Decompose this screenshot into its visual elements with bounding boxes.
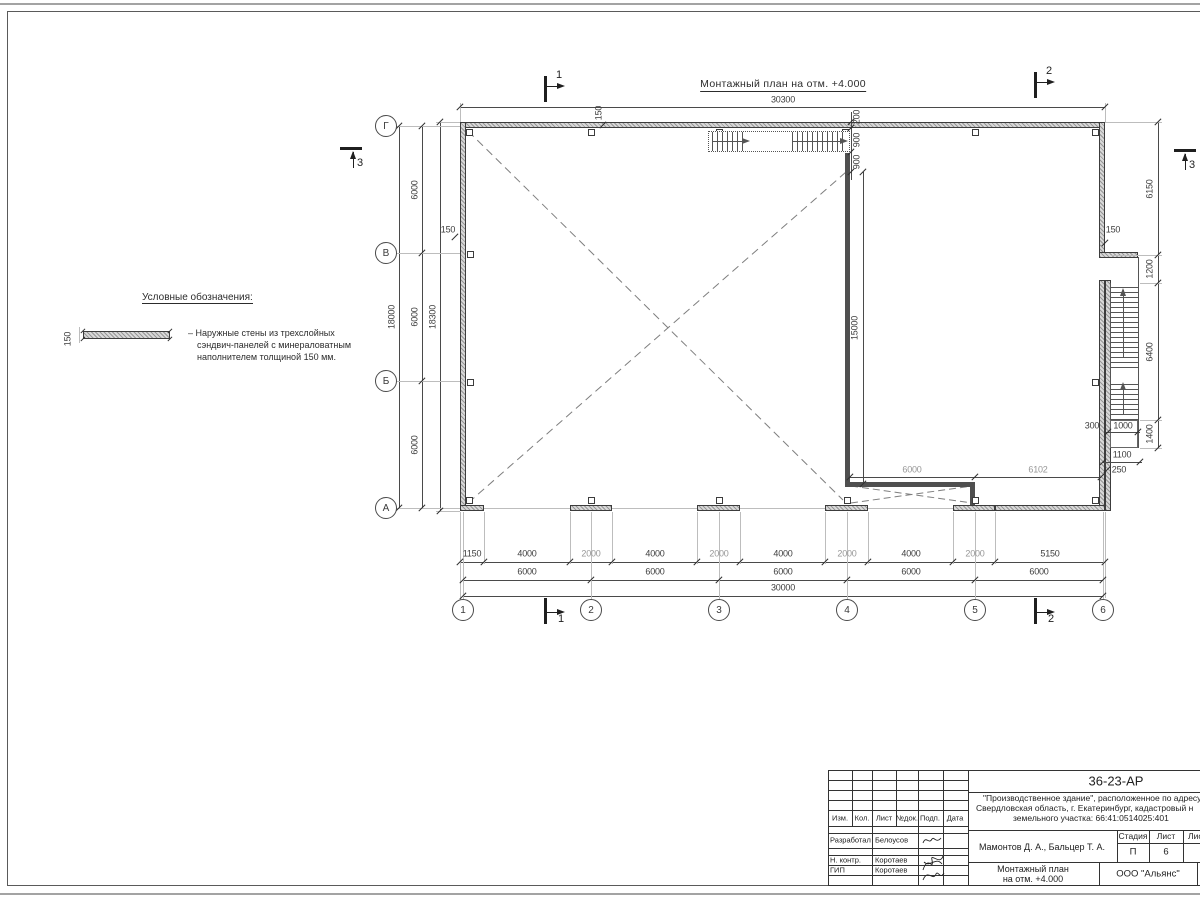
col-header: Лист [876,814,892,823]
dim-line [463,580,1103,581]
column-marker [588,129,595,136]
col-header: Дата [947,814,964,823]
ext-line [1105,512,1106,598]
role-name: Коротаев [875,856,907,865]
dim-label: 6150 [1146,179,1155,198]
dim-label: 15000 [851,316,860,340]
role-name: Коротаев [875,866,907,875]
bottom-wall-stub [570,505,612,511]
stair-arrow-head [840,138,848,144]
dim-label: 18300 [429,305,438,329]
dim-label: 18000 [388,305,397,329]
address-line: Свердловская область, г. Екатеринбург, к… [976,803,1193,813]
dim-label: 1100 [1113,451,1132,460]
section-arrow [1047,79,1055,85]
column-marker [588,497,595,504]
top-wall [460,122,1105,128]
dim-label: 30300 [771,96,795,105]
col-header: Изм. [832,814,848,823]
ext-line [953,512,954,564]
column-marker [844,497,851,504]
ext-line [995,512,996,564]
axis-bubble-col: 4 [836,599,858,621]
section-arrow [350,151,356,159]
column-marker [1092,379,1099,386]
bracing-diagonals [0,0,1200,900]
dim-label: 150 [441,226,455,235]
dim-label: 4000 [517,550,536,559]
dim-label: 6000 [902,466,921,475]
column-marker [467,251,474,258]
stair-arrow-head [1120,382,1126,390]
axis-bubble-col: 6 [1092,599,1114,621]
role-label: ГИП [830,866,845,875]
dim-line [863,172,864,484]
axis-bubble-row: А [375,497,397,519]
stair-arrow-line [712,141,742,142]
dim-label: 6000 [517,568,536,577]
section-label: 1 [556,70,562,81]
dim-label: 1400 [1146,424,1155,443]
stair-arrow-head [1120,288,1126,296]
column-marker [466,129,473,136]
signature [920,868,946,884]
col-header: №док. [896,814,918,823]
section-arrow [557,83,565,89]
ext-line [570,512,571,564]
axis-bubble-row: Б [375,370,397,392]
section-label: 1 [558,614,564,625]
sheets-header: Лис [1188,831,1200,841]
company-name: ООО "Альянс" [1116,869,1180,880]
bottom-wall-stub [825,505,868,511]
role-label: Н. контр. [830,856,861,865]
dim-line [460,107,1105,108]
title-block: 36-23-АР "Производственное здание", расп… [828,770,1200,886]
doc-code: 36-23-АР [1089,774,1144,789]
column-marker [467,379,474,386]
axis-line [396,253,460,254]
column-marker [716,497,723,504]
section-marker-1-top [544,76,547,102]
sheet-value: 6 [1163,847,1168,858]
dim-label: 150 [1106,226,1120,235]
stair-arrow-line [792,141,840,142]
stage-header: Стадия [1119,831,1148,841]
ext-line [825,512,826,564]
drawing-sheet: { "sheet": { "plan_title": "Монтажный пл… [0,0,1200,900]
doc-title-line: Монтажный план [997,864,1069,874]
dim-label: 200 [853,110,862,124]
column-marker [1092,497,1099,504]
section-marker-3-right [1174,149,1196,152]
dim-label: 900 [853,133,862,147]
dim-line [1158,122,1159,448]
axis-line [396,126,460,127]
section-label: 2 [1048,614,1054,625]
ext-line [460,512,461,598]
col-header: Кол. [855,814,870,823]
right-stair-rail [1138,257,1139,448]
dim-label: 6000 [411,307,420,326]
dim-label: 2000 [965,550,984,559]
axis-bubble-col: 5 [964,599,986,621]
stair-arrow-head [742,138,750,144]
section-marker-3-left [340,147,362,150]
dim-label: 2000 [581,550,600,559]
role-name: Белоусов [875,836,908,845]
ext-line [740,512,741,564]
signature [921,834,943,847]
stage-value: П [1130,847,1137,858]
right-stair-flight-upper [1111,285,1138,368]
dim-line [399,126,400,508]
dim-label: 5150 [1040,550,1059,559]
doc-title-line: на отм. +4.000 [1003,874,1063,884]
axis-line [1103,512,1104,600]
dim-label: 2000 [709,550,728,559]
role-label: Разработал [830,836,871,845]
ext-line [484,512,485,564]
column-marker [466,497,473,504]
section-label: 2 [1046,66,1052,77]
dim-line [463,596,1103,597]
sheet-header: Лист [1157,831,1175,841]
column-marker [1092,129,1099,136]
dim-label: 30000 [771,584,795,593]
dim-label: 4000 [645,550,664,559]
dim-label: 900 [853,155,862,169]
dim-label: 150 [595,106,604,120]
address-line: "Производственное здание", расположенное… [983,793,1200,803]
section-marker-2-bottom [1034,598,1037,624]
dim-label: 250 [1112,466,1126,475]
dim-label: 6000 [645,568,664,577]
col-header: Подп. [920,814,940,823]
dim-label: 1000 [1113,422,1132,431]
dim-line [440,122,441,511]
left-wall [460,122,466,511]
column-marker [972,497,979,504]
section-marker-2-top [1034,72,1037,98]
dim-label: 4000 [901,550,920,559]
dim-label: 6000 [411,435,420,454]
section-arrow [1182,153,1188,161]
axis-bubble-row: В [375,242,397,264]
dim-label: 6400 [1146,342,1155,361]
dim-label: 6000 [901,568,920,577]
axis-line [396,381,460,382]
section-label: 3 [1189,160,1195,171]
ext-line [1105,122,1162,123]
bottom-wall-right [995,505,1105,511]
dim-label: 6000 [1029,568,1048,577]
section-marker-1-bottom [544,598,547,624]
bottom-wall-stub [697,505,740,511]
ext-line [697,512,698,564]
axis-line [396,508,460,509]
right-wall-upper [1099,122,1105,255]
axis-bubble-col: 1 [452,599,474,621]
dim-label: 300 [1085,422,1099,431]
axis-bubble-row: Г [375,115,397,137]
axis-bubble-col: 2 [580,599,602,621]
dim-label: 6102 [1028,466,1047,475]
stair-arrow-line [1123,290,1124,358]
dim-label: 6000 [773,568,792,577]
ext-line [612,512,613,564]
dim-label: 1150 [463,550,482,559]
dim-line [460,562,1105,563]
dim-line [1103,462,1142,463]
section-label: 3 [357,158,363,169]
dim-label: 2000 [837,550,856,559]
axis-bubble-col: 3 [708,599,730,621]
column-marker [972,129,979,136]
bottom-wall-stub [460,505,484,511]
dim-label: 1200 [1146,259,1155,278]
dim-label: 4000 [773,550,792,559]
bottom-wall-stub [953,505,995,511]
dim-label: 6000 [411,180,420,199]
ext-line [868,512,869,564]
dim-line [422,126,423,508]
authors: Мамонтов Д. А., Бальцер Т. А. [979,842,1105,852]
address-line: земельного участка: 66:41:0514025:401 [1013,813,1169,823]
